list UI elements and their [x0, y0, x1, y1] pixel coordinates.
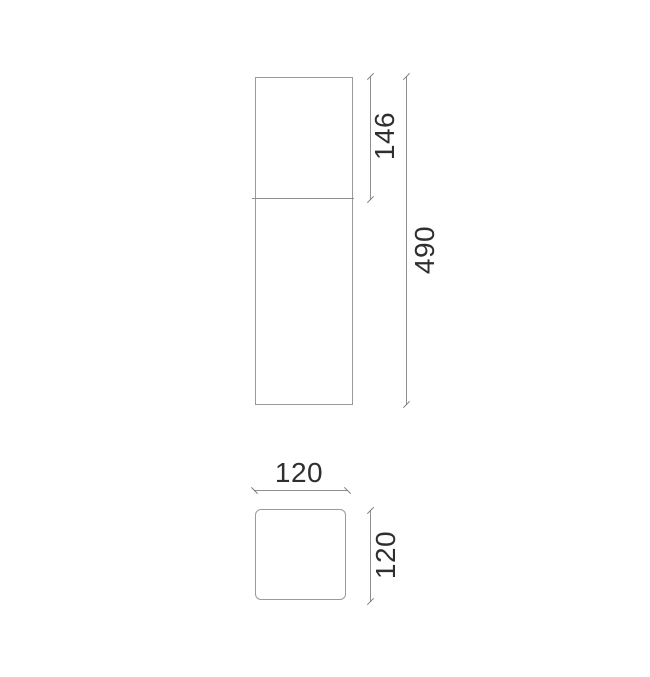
dimension-label-total-height: 490	[410, 210, 440, 290]
dimension-tick	[367, 598, 374, 605]
technical-drawing: 146 490 120 120	[0, 0, 650, 677]
dimension-label-depth: 120	[371, 515, 401, 595]
dimension-line-width	[254, 490, 348, 491]
dimension-line-total-height	[406, 76, 407, 405]
dimension-tick	[367, 73, 374, 80]
dimension-tick	[403, 401, 410, 408]
dimension-tick	[403, 73, 410, 80]
dimension-label-width: 120	[259, 458, 339, 488]
dimension-tick	[344, 487, 351, 494]
top-view-outline	[255, 509, 346, 600]
dimension-tick	[251, 487, 258, 494]
dimension-label-head-height: 146	[370, 96, 400, 176]
dimension-tick	[367, 507, 374, 514]
front-view-divider-line	[252, 198, 354, 199]
dimension-tick	[367, 196, 374, 203]
front-view-outline	[255, 77, 353, 405]
